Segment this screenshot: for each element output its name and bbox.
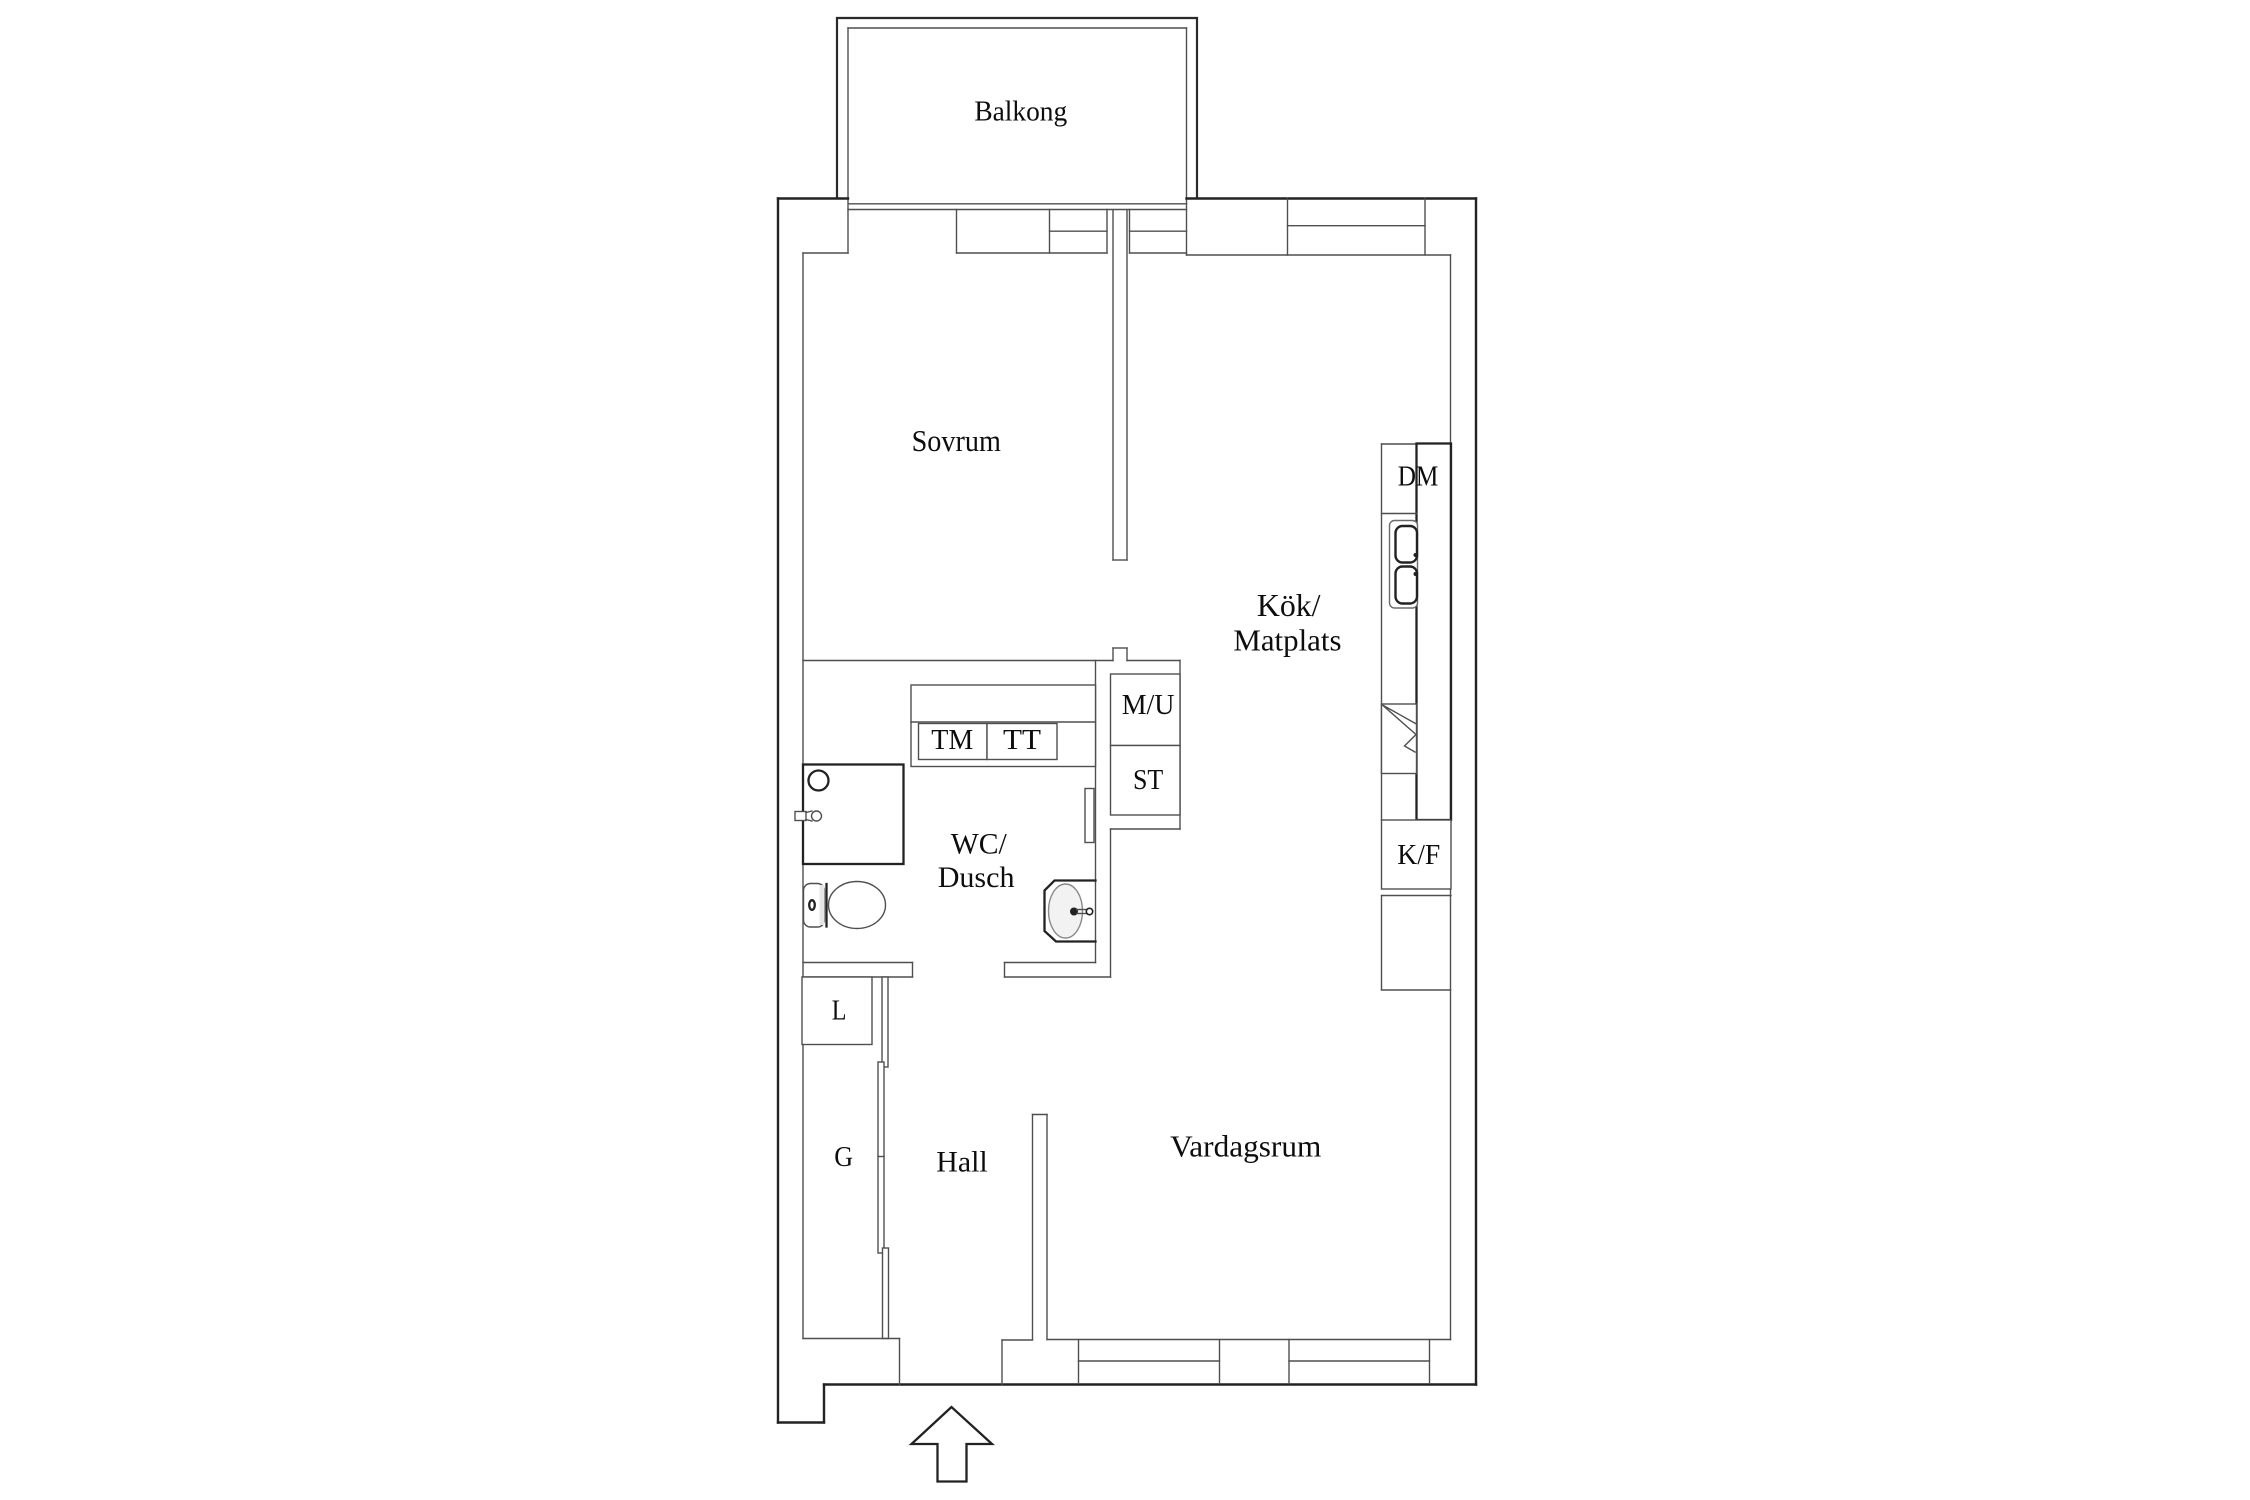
svg-text:L: L xyxy=(832,995,847,1026)
svg-text:Balkong: Balkong xyxy=(974,97,1067,128)
svg-text:M/U: M/U xyxy=(1122,690,1175,721)
svg-text:Kök/: Kök/ xyxy=(1257,588,1321,623)
svg-text:K/F: K/F xyxy=(1397,840,1440,871)
svg-text:ST: ST xyxy=(1133,765,1163,796)
svg-text:Matplats: Matplats xyxy=(1233,622,1341,657)
svg-text:G: G xyxy=(834,1142,853,1173)
svg-text:TT: TT xyxy=(1003,725,1041,756)
svg-text:Sovrum: Sovrum xyxy=(912,424,1002,458)
svg-text:Vardagsrum: Vardagsrum xyxy=(1170,1129,1321,1163)
svg-text:TM: TM xyxy=(931,725,973,756)
svg-text:DM: DM xyxy=(1398,462,1439,493)
svg-text:Dusch: Dusch xyxy=(938,861,1015,894)
svg-text:Hall: Hall xyxy=(936,1147,987,1179)
svg-text:WC/: WC/ xyxy=(951,827,1008,860)
